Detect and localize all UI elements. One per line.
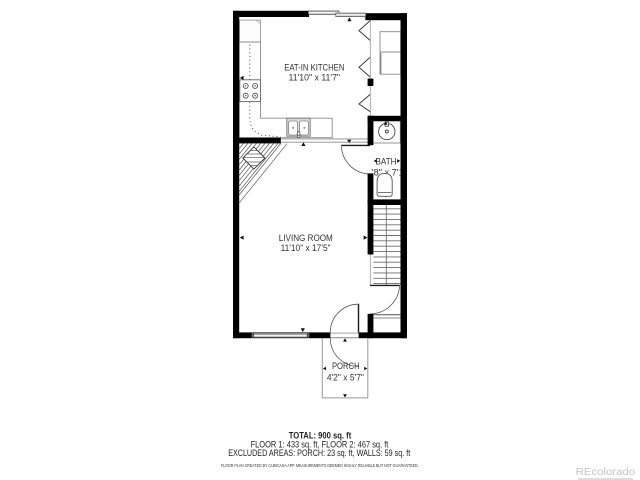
svg-text:11'10" x 11'7": 11'10" x 11'7" — [289, 73, 341, 83]
svg-text:REcolorado: REcolorado — [576, 467, 636, 478]
svg-text:LIVING ROOM: LIVING ROOM — [279, 233, 333, 243]
svg-text:FLOOR PLAN CREATED BY CUBICASA: FLOOR PLAN CREATED BY CUBICASA APP. MEAS… — [221, 463, 419, 468]
svg-text:EAT-IN KITCHEN: EAT-IN KITCHEN — [284, 63, 344, 73]
svg-text:EXCLUDED AREAS: PORCH: 23 sq.: EXCLUDED AREAS: PORCH: 23 sq. ft, WALLS:… — [228, 448, 410, 458]
svg-text:BATH: BATH — [376, 156, 397, 166]
svg-text:11'10" x 17'5": 11'10" x 17'5" — [281, 243, 331, 253]
svg-text:PORCH: PORCH — [332, 361, 360, 371]
svg-text:4'2" x 5'7": 4'2" x 5'7" — [327, 372, 364, 382]
